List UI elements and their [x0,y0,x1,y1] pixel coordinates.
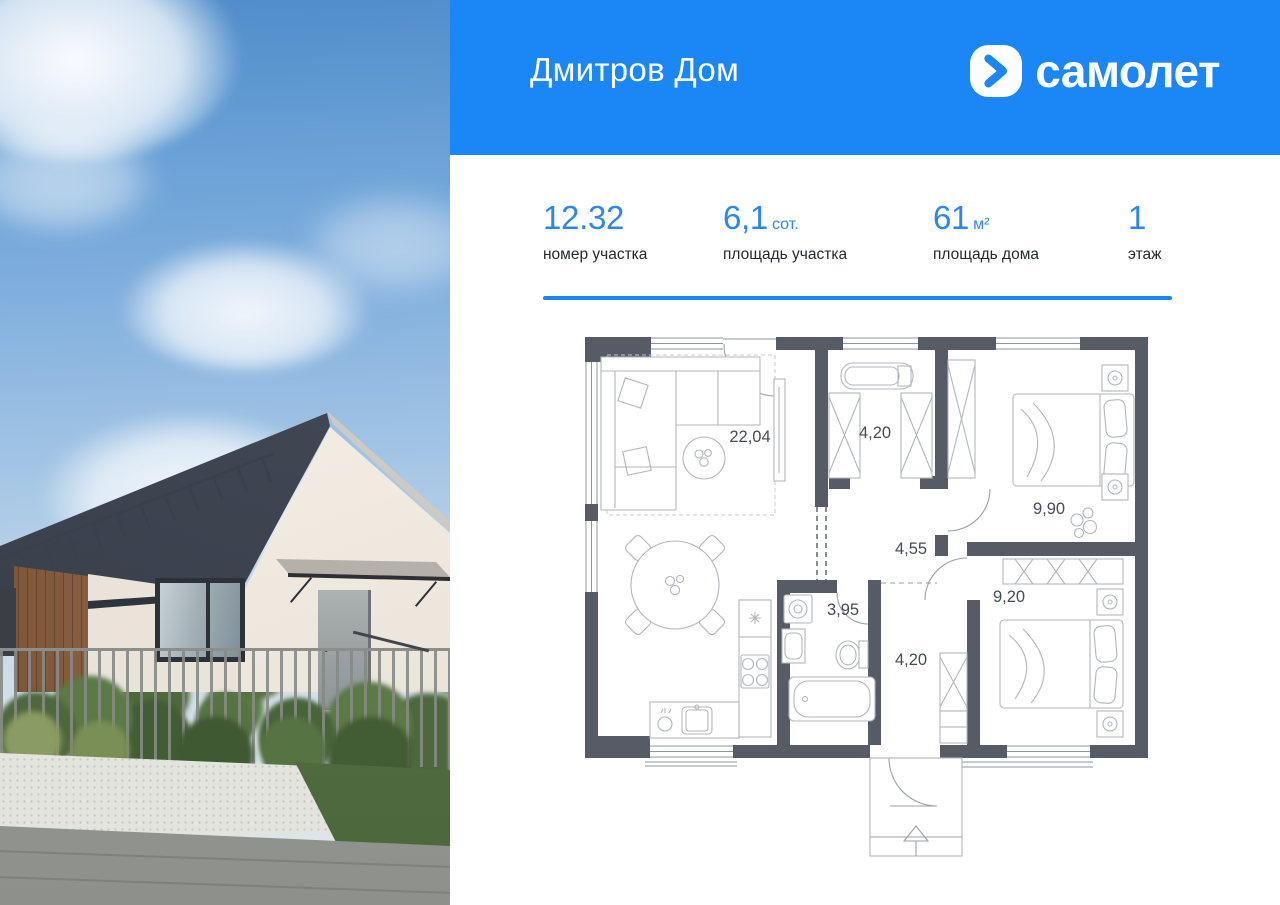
stat-unit: м² [973,216,989,233]
samolet-logo-icon [970,45,1022,97]
small-window [0,588,16,656]
stat-value: 61 [933,199,969,236]
stat-label: площадь дома [933,246,1039,264]
samolet-logo-text: самолет [1035,48,1220,94]
stat-label: этаж [1128,246,1161,264]
project-title: Дмитров Дом [530,51,739,89]
floor-plan: 22,04 4,20 9,90 4,55 3,95 4,20 9,20 [585,337,1148,860]
stat-plot-area: 6,1сот. площадь участка [723,199,847,264]
wardrobe-room-furniture [829,363,932,478]
bedroom2-furniture [1000,559,1123,737]
living-room-furniture [601,355,785,636]
room-area-bedroom2: 9,20 [993,588,1025,606]
header: Дмитров Дом самолет [450,0,1280,155]
stat-unit: сот. [772,216,799,233]
room-area-wardrobe: 4,20 [859,424,891,442]
porch [870,758,962,856]
entrance-arrow-icon [904,826,928,856]
stat-house-area: 61м² площадь дома [933,199,1039,264]
stat-label: номер участка [543,246,647,264]
room-area-living: 22,04 [729,428,770,446]
stat-label: площадь участка [723,246,847,264]
stat-floors: 1 этаж [1128,199,1161,264]
room-area-bathroom: 3,95 [827,601,859,619]
listing-panel: Дмитров Дом самолет 12.32 номер участка … [450,0,1280,905]
stat-value: 6,1 [723,199,768,236]
corridor-furniture [940,653,967,743]
house-photo [0,0,450,905]
plant [1071,508,1097,538]
stat-plot-number: 12.32 номер участка [543,199,647,264]
stat-value: 1 [1128,199,1146,236]
stat-value: 12.32 [543,199,624,236]
room-area-corridor: 4,20 [895,651,927,669]
room-area-bedroom1: 9,90 [1033,500,1065,518]
samolet-logo: самолет [970,45,1220,97]
room-area-hallway: 4,55 [895,540,927,558]
blue-divider [543,296,1172,300]
